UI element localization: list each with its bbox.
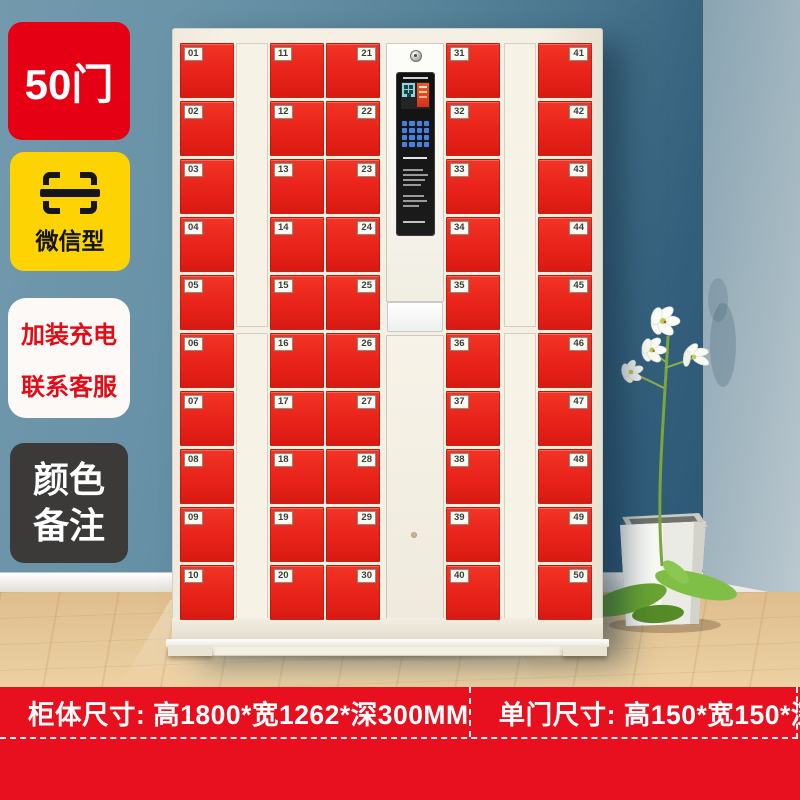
keypad-key — [424, 128, 429, 133]
door-number: 27 — [357, 395, 376, 409]
locker-door-16: 16 — [270, 333, 324, 388]
door-number: 50 — [569, 569, 588, 583]
locker-door-02: 02 — [180, 101, 234, 156]
door-number: 20 — [274, 569, 293, 583]
locker-door-41: 41 — [538, 43, 592, 98]
locker-door-07: 07 — [180, 391, 234, 446]
door-number: 40 — [450, 569, 469, 583]
locker-door-28: 28 — [326, 449, 380, 504]
locker-door-03: 03 — [180, 159, 234, 214]
locker-door-32: 32 — [446, 101, 500, 156]
service-badge: 加装充电 联系客服 — [8, 298, 130, 418]
door-number: 35 — [450, 279, 469, 293]
door-number: 08 — [184, 453, 203, 467]
keypad-key — [402, 135, 407, 140]
locker-door-45: 45 — [538, 275, 592, 330]
locker-door-47: 47 — [538, 391, 592, 446]
locker-door-08: 08 — [180, 449, 234, 504]
locker-door-46: 46 — [538, 333, 592, 388]
panel-fine-print — [403, 169, 423, 171]
keypad-key — [417, 121, 422, 126]
panel-screen — [401, 82, 430, 109]
qr-code-icon — [402, 83, 415, 97]
locker-door-31: 31 — [446, 43, 500, 98]
keypad-key — [402, 128, 407, 133]
locker-door-14: 14 — [270, 217, 324, 272]
locker-door-22: 22 — [326, 101, 380, 156]
locker-col-4: 31323334353637383940 — [446, 28, 498, 656]
door-number: 47 — [569, 395, 588, 409]
locker-door-29: 29 — [326, 507, 380, 562]
panel-keypad — [402, 121, 429, 147]
door-number: 48 — [569, 453, 588, 467]
door-number: 49 — [569, 511, 588, 525]
locker-col-2: 11121314151617181920 — [270, 28, 322, 656]
panel-title-text — [403, 77, 428, 79]
panel-ad-poster — [417, 83, 429, 107]
hinge-strip — [236, 43, 268, 327]
door-number: 21 — [357, 47, 376, 61]
door-number: 29 — [357, 511, 376, 525]
door-number: 19 — [274, 511, 293, 525]
hinge-strip — [236, 333, 268, 620]
keypad-key — [424, 135, 429, 140]
locker-door-10: 10 — [180, 565, 234, 620]
locker-col-5: 41424344454647484950 — [538, 28, 590, 656]
control-column — [386, 28, 442, 656]
panel-fine-print — [403, 174, 428, 176]
locker-door-15: 15 — [270, 275, 324, 330]
locker-door-44: 44 — [538, 217, 592, 272]
locker-door-04: 04 — [180, 217, 234, 272]
locker-door-25: 25 — [326, 275, 380, 330]
keypad-key — [409, 142, 414, 147]
lock-icon — [410, 50, 422, 62]
door-number: 11 — [274, 47, 292, 61]
panel-fine-print — [403, 195, 424, 197]
door-number: 06 — [184, 337, 203, 351]
control-door — [386, 43, 444, 302]
door-size-text: 单门尺寸: 高150*宽150*深300MM — [471, 687, 800, 737]
locker-col-1: 01020304050607080910 — [180, 28, 232, 656]
locker-door-35: 35 — [446, 275, 500, 330]
locker-door-39: 39 — [446, 507, 500, 562]
door-number: 16 — [274, 337, 293, 351]
locker-door-43: 43 — [538, 159, 592, 214]
door-number: 18 — [274, 453, 293, 467]
door-number: 14 — [274, 221, 293, 235]
door-number: 17 — [274, 395, 293, 409]
panel-fine-print — [403, 179, 425, 181]
door-number: 23 — [357, 163, 376, 177]
service-line: 加装充电 — [21, 315, 117, 350]
door-number: 45 — [569, 279, 588, 293]
orchid-flower — [617, 356, 648, 388]
door-number: 41 — [569, 47, 588, 61]
locker-door-50: 50 — [538, 565, 592, 620]
locker-door-33: 33 — [446, 159, 500, 214]
door-number: 34 — [450, 221, 469, 235]
door-number: 26 — [357, 337, 376, 351]
locker-door-20: 20 — [270, 565, 324, 620]
center-panel-plate — [387, 302, 443, 332]
door-count-label: 50门 — [25, 51, 114, 112]
locker-door-38: 38 — [446, 449, 500, 504]
panel-caption-text — [403, 157, 427, 159]
keypad-key — [417, 135, 422, 140]
locker-door-05: 05 — [180, 275, 234, 330]
door-number: 38 — [450, 453, 469, 467]
hinge-strip — [504, 43, 536, 327]
locker-door-11: 11 — [270, 43, 324, 98]
locker-door-24: 24 — [326, 217, 380, 272]
panel-fine-print — [403, 200, 427, 202]
door-number: 01 — [184, 47, 203, 61]
door-number: 12 — [274, 105, 293, 119]
wechat-scan-icon — [38, 168, 102, 218]
door-number: 13 — [274, 163, 293, 177]
locker-col-3: 21222324252627282930 — [326, 28, 378, 656]
door-number: 28 — [357, 453, 376, 467]
door-number: 09 — [184, 511, 203, 525]
door-number: 04 — [184, 221, 203, 235]
cabinet-size-text: 柜体尺寸: 高1800*宽1262*深300MM — [0, 687, 471, 737]
service-line: 联系客服 — [21, 367, 117, 402]
keypad-key — [424, 121, 429, 126]
locker-door-26: 26 — [326, 333, 380, 388]
locker-door-42: 42 — [538, 101, 592, 156]
locker-cabinet: 0102030405060708091011121314151617181920… — [172, 28, 603, 656]
door-number: 15 — [274, 279, 293, 293]
locker-door-37: 37 — [446, 391, 500, 446]
door-number: 37 — [450, 395, 469, 409]
locker-door-36: 36 — [446, 333, 500, 388]
door-number: 10 — [184, 569, 203, 583]
door-number: 30 — [357, 569, 376, 583]
door-count-badge: 50门 — [8, 22, 130, 140]
hinge-strip — [504, 333, 536, 620]
orchid-flower — [649, 304, 680, 338]
door-number: 42 — [569, 105, 588, 119]
keypad-key — [417, 142, 422, 147]
door-number: 31 — [450, 47, 469, 61]
locker-door-34: 34 — [446, 217, 500, 272]
color-note-line: 颜色 — [33, 460, 105, 500]
door-number: 25 — [357, 279, 376, 293]
locker-door-30: 30 — [326, 565, 380, 620]
spec-row: 柜体尺寸: 高1800*宽1262*深300MM 单门尺寸: 高150*宽150… — [0, 687, 798, 739]
door-number: 22 — [357, 105, 376, 119]
locker-door-48: 48 — [538, 449, 592, 504]
locker-door-17: 17 — [270, 391, 324, 446]
spec-banner: 柜体尺寸: 高1800*宽1262*深300MM 单门尺寸: 高150*宽150… — [0, 687, 800, 800]
keypad-key — [409, 135, 414, 140]
keypad-key — [424, 142, 429, 147]
locker-door-12: 12 — [270, 101, 324, 156]
keypad-key — [402, 142, 407, 147]
locker-door-40: 40 — [446, 565, 500, 620]
door-number: 03 — [184, 163, 203, 177]
door-number: 05 — [184, 279, 203, 293]
locker-door-13: 13 — [270, 159, 324, 214]
center-bottom-door — [386, 335, 444, 620]
panel-fine-print — [403, 221, 425, 223]
keypad-key — [409, 121, 414, 126]
door-number: 24 — [357, 221, 376, 235]
locker-door-23: 23 — [326, 159, 380, 214]
door-number: 43 — [569, 163, 588, 177]
door-number: 36 — [450, 337, 469, 351]
door-number: 32 — [450, 105, 469, 119]
keypad-key — [417, 128, 422, 133]
locker-door-27: 27 — [326, 391, 380, 446]
product-image: 0102030405060708091011121314151617181920… — [0, 0, 800, 800]
door-number: 46 — [569, 337, 588, 351]
locker-door-18: 18 — [270, 449, 324, 504]
orchid-flower — [677, 338, 715, 375]
keypad-key — [409, 128, 414, 133]
locker-door-19: 19 — [270, 507, 324, 562]
locker-door-49: 49 — [538, 507, 592, 562]
door-number: 33 — [450, 163, 469, 177]
door-number: 02 — [184, 105, 203, 119]
keypad-key — [402, 121, 407, 126]
keyhole-icon — [411, 532, 417, 538]
wechat-type-badge: 微信型 — [10, 152, 130, 271]
door-number: 44 — [569, 221, 588, 235]
locker-door-21: 21 — [326, 43, 380, 98]
locker-door-01: 01 — [180, 43, 234, 98]
panel-fine-print — [403, 184, 421, 186]
door-number: 07 — [184, 395, 203, 409]
color-note-badge: 颜色 备注 — [10, 443, 128, 563]
locker-door-09: 09 — [180, 507, 234, 562]
color-note-line: 备注 — [33, 506, 105, 546]
door-number: 39 — [450, 511, 469, 525]
panel-fine-print — [403, 205, 419, 207]
locker-door-06: 06 — [180, 333, 234, 388]
wechat-type-label: 微信型 — [36, 222, 105, 256]
control-panel — [397, 73, 434, 235]
